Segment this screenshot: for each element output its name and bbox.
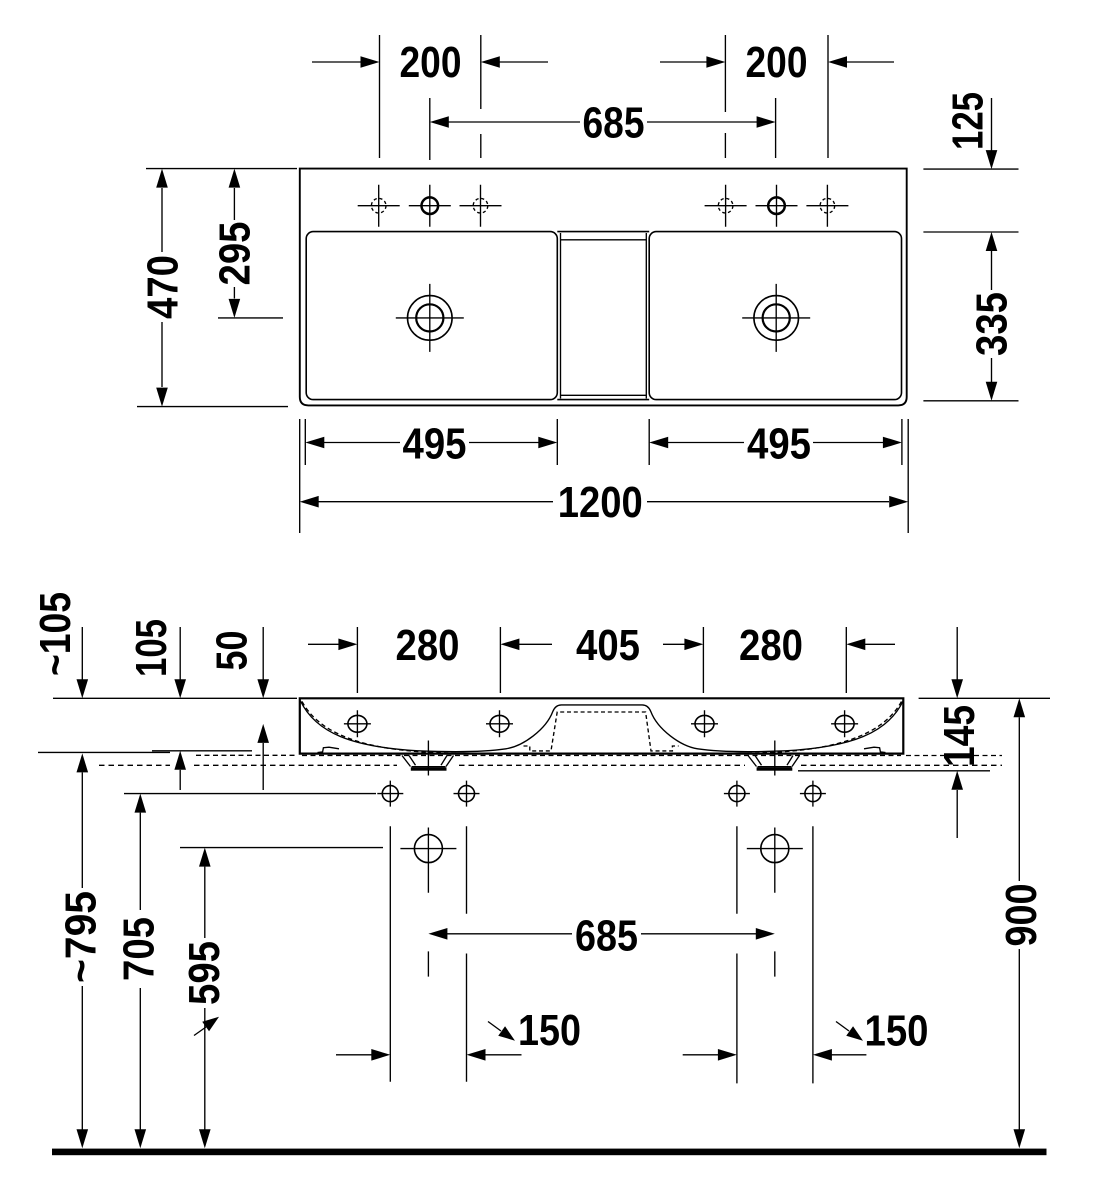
svg-text:295: 295 [211, 222, 260, 286]
svg-text:280: 280 [739, 621, 803, 670]
svg-text:900: 900 [997, 884, 1046, 947]
svg-text:~795: ~795 [57, 891, 106, 983]
svg-text:150: 150 [865, 1007, 929, 1056]
svg-text:595: 595 [180, 941, 229, 1005]
svg-text:335: 335 [968, 292, 1017, 356]
svg-text:495: 495 [403, 420, 467, 469]
svg-text:495: 495 [747, 420, 811, 469]
svg-text:705: 705 [115, 917, 164, 981]
svg-text:685: 685 [575, 912, 638, 961]
svg-text:200: 200 [746, 38, 808, 87]
svg-text:105: 105 [127, 619, 176, 677]
svg-text:685: 685 [583, 99, 645, 148]
svg-text:150: 150 [518, 1006, 581, 1055]
svg-text:405: 405 [576, 621, 640, 670]
svg-text:125: 125 [944, 92, 993, 150]
svg-text:470: 470 [139, 255, 188, 319]
svg-text:145: 145 [935, 705, 984, 767]
svg-text:200: 200 [400, 38, 462, 87]
svg-text:280: 280 [396, 621, 460, 670]
svg-text:50: 50 [208, 631, 257, 671]
svg-text:~105: ~105 [31, 592, 80, 676]
svg-text:1200: 1200 [558, 478, 643, 527]
